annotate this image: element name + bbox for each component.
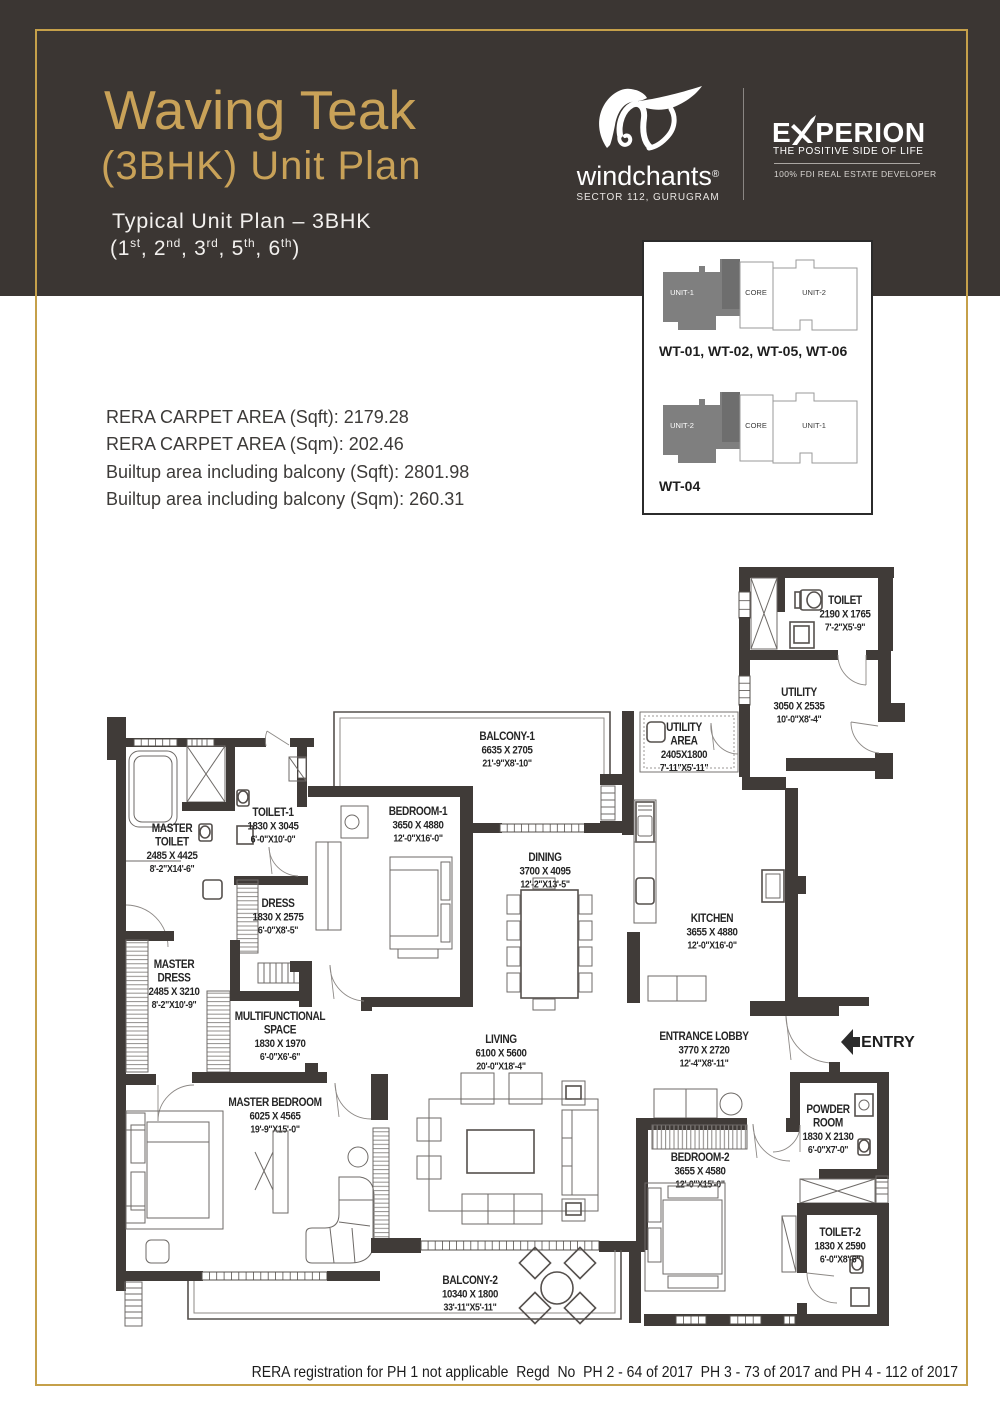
svg-text:12'-0"X16'-0": 12'-0"X16'-0" [393, 833, 442, 845]
svg-text:ENTRY: ENTRY [861, 1034, 915, 1051]
svg-text:8'-2"X10'-9": 8'-2"X10'-9" [152, 999, 197, 1011]
svg-text:10340 X 1800: 10340 X 1800 [442, 1288, 498, 1301]
svg-text:AREA: AREA [670, 735, 698, 748]
svg-text:6'-0"X6'-6": 6'-0"X6'-6" [260, 1051, 300, 1063]
svg-text:KITCHEN: KITCHEN [691, 912, 734, 925]
svg-text:19'-9"X15'-0": 19'-9"X15'-0" [250, 1124, 299, 1136]
svg-text:UTILITY: UTILITY [781, 686, 818, 699]
svg-text:6025 X 4565: 6025 X 4565 [249, 1110, 300, 1123]
svg-text:WT-04: WT-04 [659, 478, 700, 494]
svg-text:2485 X 3210: 2485 X 3210 [148, 985, 199, 998]
svg-text:UNIT-1: UNIT-1 [670, 288, 694, 297]
svg-text:SPACE: SPACE [264, 1024, 296, 1037]
svg-text:12'-4"X8'-11": 12'-4"X8'-11" [680, 1058, 729, 1070]
svg-text:7'-11"X5'-11": 7'-11"X5'-11" [660, 762, 708, 774]
svg-text:BALCONY-2: BALCONY-2 [442, 1274, 497, 1287]
svg-text:6100 X 5600: 6100 X 5600 [475, 1047, 526, 1060]
svg-text:3655 X 4580: 3655 X 4580 [674, 1165, 725, 1178]
svg-text:3700 X 4095: 3700 X 4095 [519, 865, 570, 878]
svg-text:CORE: CORE [745, 288, 767, 297]
svg-text:UNIT-2: UNIT-2 [802, 288, 826, 297]
svg-text:1830 X 2590: 1830 X 2590 [814, 1240, 865, 1253]
svg-text:UNIT-1: UNIT-1 [802, 421, 826, 430]
svg-text:BEDROOM-1: BEDROOM-1 [389, 805, 448, 818]
svg-text:MULTIFUNCTIONAL: MULTIFUNCTIONAL [235, 1010, 326, 1023]
svg-text:1830 X 1970: 1830 X 1970 [254, 1037, 305, 1050]
svg-text:TOILET: TOILET [155, 836, 189, 849]
svg-text:6'-0"X8'-6": 6'-0"X8'-6" [820, 1254, 860, 1266]
svg-text:LIVING: LIVING [485, 1033, 517, 1046]
svg-text:TOILET-1: TOILET-1 [252, 806, 294, 819]
svg-text:ENTRANCE LOBBY: ENTRANCE LOBBY [659, 1030, 749, 1043]
svg-text:WT-01, WT-02, WT-05, WT-06: WT-01, WT-02, WT-05, WT-06 [659, 343, 847, 359]
svg-text:2190 X 1765: 2190 X 1765 [819, 608, 870, 621]
svg-text:1830 X 3045: 1830 X 3045 [247, 820, 298, 833]
svg-text:3050 X 2535: 3050 X 2535 [773, 700, 824, 713]
svg-text:MASTER: MASTER [154, 958, 195, 971]
svg-text:3770 X 2720: 3770 X 2720 [678, 1044, 729, 1057]
svg-text:CORE: CORE [745, 421, 767, 430]
svg-text:12'-0"X15'-0": 12'-0"X15'-0" [675, 1179, 724, 1191]
svg-text:DINING: DINING [528, 851, 561, 864]
svg-text:20'-0"X18'-4": 20'-0"X18'-4" [476, 1061, 525, 1073]
svg-text:6635 X 2705: 6635 X 2705 [481, 744, 532, 757]
svg-text:2485 X 4425: 2485 X 4425 [146, 849, 197, 862]
svg-text:2405X1800: 2405X1800 [661, 748, 708, 761]
svg-text:MASTER: MASTER [152, 822, 193, 835]
svg-text:21'-9"X8'-10": 21'-9"X8'-10" [482, 758, 531, 770]
svg-text:BALCONY-1: BALCONY-1 [479, 730, 534, 743]
svg-text:8'-2"X14'-6": 8'-2"X14'-6" [150, 863, 195, 875]
svg-text:MASTER BEDROOM: MASTER BEDROOM [228, 1096, 321, 1109]
svg-text:10'-0"X8'-4": 10'-0"X8'-4" [777, 714, 822, 726]
svg-text:1830 X 2575: 1830 X 2575 [252, 911, 303, 924]
svg-text:DRESS: DRESS [261, 897, 294, 910]
svg-text:3655 X 4880: 3655 X 4880 [686, 926, 737, 939]
svg-text:UTILITY: UTILITY [666, 721, 703, 734]
svg-text:DRESS: DRESS [157, 972, 190, 985]
svg-text:UNIT-2: UNIT-2 [670, 421, 694, 430]
svg-text:1830 X 2130: 1830 X 2130 [802, 1130, 853, 1143]
svg-text:3650 X 4880: 3650 X 4880 [392, 819, 443, 832]
svg-text:ROOM: ROOM [813, 1117, 843, 1130]
svg-text:12'-0"X16'-0": 12'-0"X16'-0" [687, 940, 736, 952]
svg-text:7'-2"X5'-9": 7'-2"X5'-9" [825, 622, 865, 634]
svg-text:33'-11"X5'-11": 33'-11"X5'-11" [444, 1302, 497, 1314]
svg-text:6'-0"X7'-0": 6'-0"X7'-0" [808, 1144, 848, 1156]
svg-text:6'-0"X8'-5": 6'-0"X8'-5" [258, 925, 298, 937]
svg-text:6'-0"X10'-0": 6'-0"X10'-0" [251, 834, 296, 846]
svg-text:POWDER: POWDER [806, 1103, 850, 1116]
svg-text:TOILET-2: TOILET-2 [819, 1226, 861, 1239]
svg-text:BEDROOM-2: BEDROOM-2 [671, 1151, 730, 1164]
svg-text:TOILET: TOILET [828, 594, 862, 607]
